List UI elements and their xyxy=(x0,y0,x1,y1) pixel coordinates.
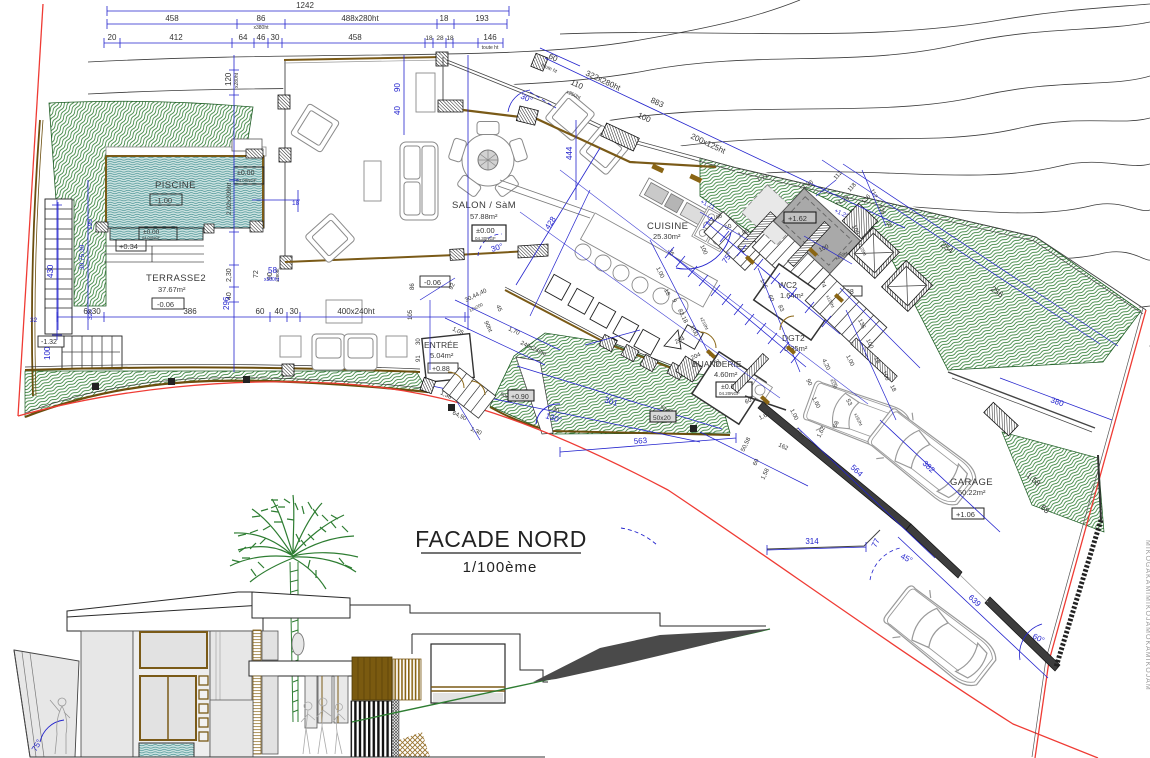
svg-text:+0.90: +0.90 xyxy=(511,394,529,401)
svg-text:±0.00: ±0.00 xyxy=(237,170,255,177)
svg-text:-1.00: -1.00 xyxy=(155,196,172,205)
svg-text:18: 18 xyxy=(440,14,449,23)
svg-text:28: 28 xyxy=(436,35,444,42)
svg-text:146: 146 xyxy=(483,33,497,42)
svg-text:412: 412 xyxy=(169,33,183,42)
svg-text:30,75,30: 30,75,30 xyxy=(79,244,86,270)
svg-text:+1.62: +1.62 xyxy=(788,214,807,223)
svg-text:1.64m²: 1.64m² xyxy=(780,291,804,300)
svg-text:30: 30 xyxy=(290,307,299,316)
svg-text:57.88m²: 57.88m² xyxy=(470,212,498,221)
svg-text:30: 30 xyxy=(271,33,280,42)
svg-text:458: 458 xyxy=(348,33,362,42)
svg-text:58: 58 xyxy=(268,266,277,275)
svg-text:563: 563 xyxy=(633,436,648,446)
svg-text:x380ht: x380ht xyxy=(264,277,280,283)
svg-text:50.22m²: 50.22m² xyxy=(958,488,986,497)
svg-text:400x240ht: 400x240ht xyxy=(337,307,375,316)
svg-text:91: 91 xyxy=(416,355,422,362)
svg-text:430: 430 xyxy=(46,264,55,278)
svg-text:86: 86 xyxy=(257,14,266,23)
svg-text:444: 444 xyxy=(565,146,574,160)
svg-text:GARAGE: GARAGE xyxy=(950,477,993,488)
svg-text:37.67m²: 37.67m² xyxy=(158,285,186,294)
svg-text:CUISINE: CUISINE xyxy=(647,221,688,232)
svg-text:458: 458 xyxy=(165,14,179,23)
svg-text:488x280ht: 488x280ht xyxy=(341,14,379,23)
svg-text:-1.32: -1.32 xyxy=(41,339,57,346)
svg-text:ENTRÉE: ENTRÉE xyxy=(424,340,459,350)
svg-text:46: 46 xyxy=(257,33,266,42)
svg-text:x280ht: x280ht xyxy=(234,72,240,88)
svg-text:6x30: 6x30 xyxy=(83,307,101,316)
svg-text:x380ht: x380ht xyxy=(253,25,269,31)
svg-text:2,30: 2,30 xyxy=(226,268,233,282)
svg-text:32: 32 xyxy=(30,317,38,324)
svg-text:120: 120 xyxy=(224,72,233,86)
svg-text:-0.06: -0.06 xyxy=(424,278,441,287)
svg-text:4.60m²: 4.60m² xyxy=(714,370,738,379)
svg-text:1242: 1242 xyxy=(296,1,314,10)
svg-text:72: 72 xyxy=(253,270,260,278)
svg-text:193: 193 xyxy=(475,14,489,23)
svg-text:90: 90 xyxy=(393,83,402,92)
svg-text:04.00NGF: 04.00NGF xyxy=(236,178,257,183)
svg-text:MIKOGAKAMIMIKOJAMOKAMIKOJAM: MIKOGAKAMIMIKOJAMOKAMIKOJAM xyxy=(1144,540,1150,691)
svg-text:190: 190 xyxy=(87,219,94,230)
svg-text:04.30NGF: 04.30NGF xyxy=(475,236,496,241)
svg-text:64: 64 xyxy=(239,33,248,42)
svg-text:20: 20 xyxy=(108,33,117,42)
svg-text:18: 18 xyxy=(425,35,433,42)
svg-text:60: 60 xyxy=(256,307,265,316)
svg-text:30: 30 xyxy=(416,338,422,345)
svg-text:TERRASSE2: TERRASSE2 xyxy=(146,273,206,284)
svg-text:PISCINE: PISCINE xyxy=(155,180,196,191)
svg-text:40: 40 xyxy=(275,307,284,316)
svg-text:296: 296 xyxy=(222,296,231,310)
svg-text:toute ht: toute ht xyxy=(482,45,499,51)
svg-text:+0.34: +0.34 xyxy=(119,242,138,251)
svg-text:86: 86 xyxy=(410,283,416,290)
svg-text:314: 314 xyxy=(805,537,819,546)
svg-text:105: 105 xyxy=(408,309,414,320)
svg-text:2.02x209ht: 2.02x209ht xyxy=(226,183,233,215)
svg-text:1/100ème: 1/100ème xyxy=(463,559,538,576)
svg-text:100: 100 xyxy=(43,346,52,360)
svg-text:50x20: 50x20 xyxy=(653,415,671,422)
svg-text:25.30m²: 25.30m² xyxy=(653,232,681,241)
svg-text:SALON / SàM: SALON / SàM xyxy=(452,200,516,211)
svg-text:18: 18 xyxy=(292,200,300,207)
svg-text:386: 386 xyxy=(183,307,197,316)
svg-text:5.04m²: 5.04m² xyxy=(430,351,454,360)
svg-text:-0.06: -0.06 xyxy=(157,300,174,309)
svg-text:FACADE NORD: FACADE NORD xyxy=(415,526,587,552)
svg-text:04.00NGF: 04.00NGF xyxy=(142,235,161,240)
svg-text:+0.88: +0.88 xyxy=(432,366,450,373)
svg-text:±0.00: ±0.00 xyxy=(476,226,495,235)
svg-text:18: 18 xyxy=(446,35,454,42)
svg-text:40: 40 xyxy=(393,106,402,115)
svg-text:+1.06: +1.06 xyxy=(956,510,975,519)
